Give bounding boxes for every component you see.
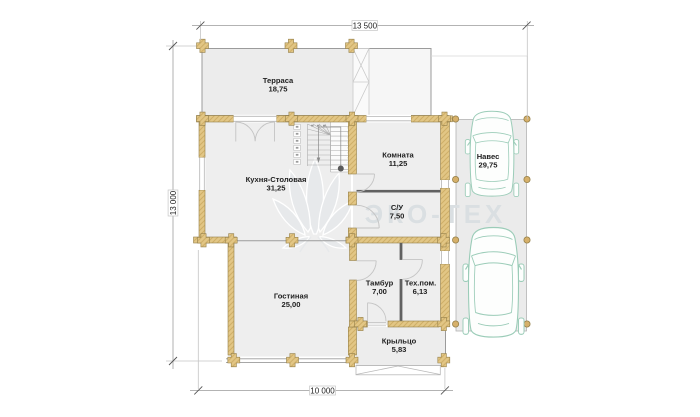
- svg-text:13 000: 13 000: [169, 190, 178, 215]
- svg-text:5,83: 5,83: [392, 345, 407, 354]
- svg-text:13 500: 13 500: [353, 21, 378, 30]
- svg-text:25,00: 25,00: [281, 300, 300, 309]
- svg-text:10 000: 10 000: [310, 386, 335, 395]
- svg-text:6,13: 6,13: [413, 287, 428, 296]
- svg-text:31,25: 31,25: [266, 184, 286, 193]
- svg-text:ЭКО-ТЕХ: ЭКО-ТЕХ: [365, 199, 507, 229]
- svg-text:29,75: 29,75: [478, 161, 498, 170]
- svg-text:7,50: 7,50: [390, 212, 405, 221]
- svg-text:18,75: 18,75: [268, 85, 288, 94]
- svg-text:11,25: 11,25: [389, 159, 408, 168]
- svg-text:7,00: 7,00: [372, 287, 387, 296]
